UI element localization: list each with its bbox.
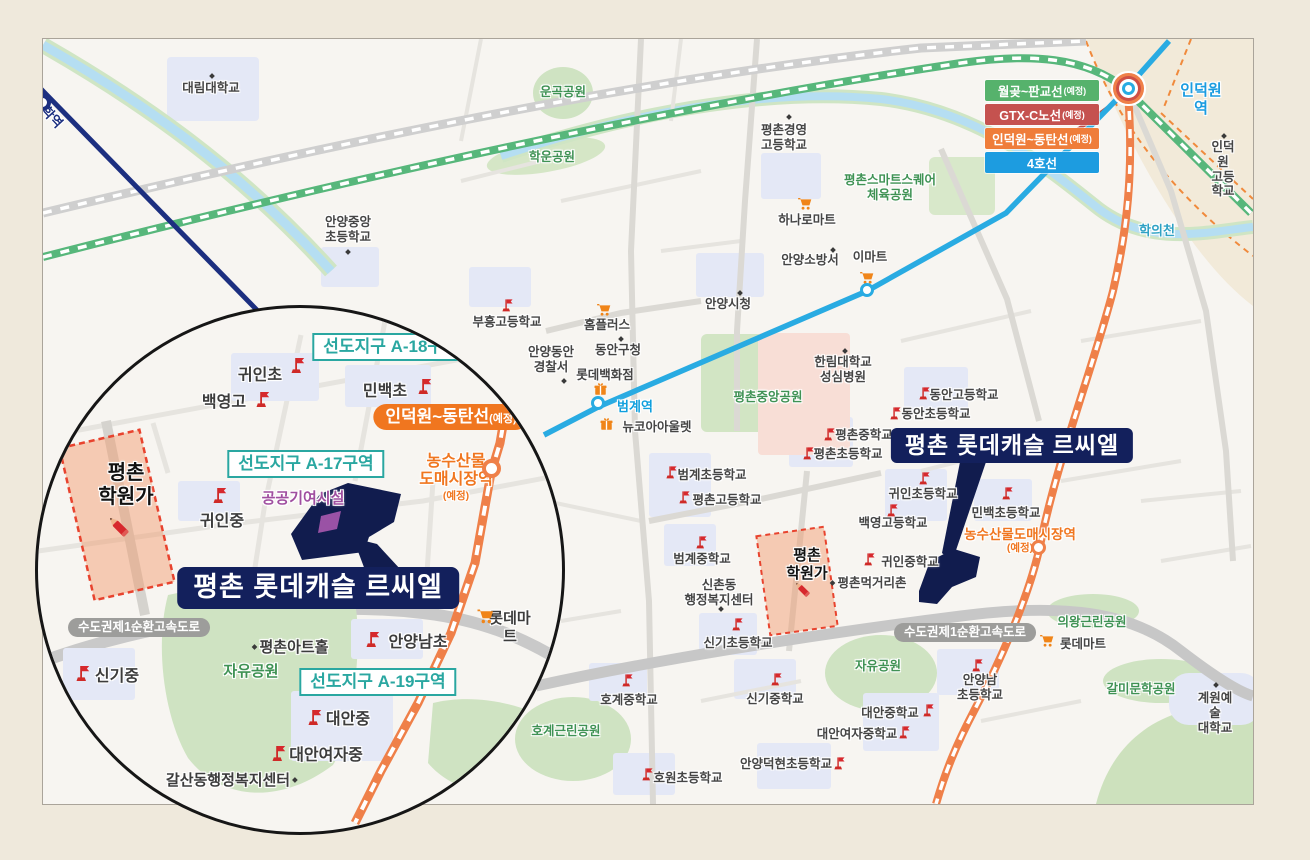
mart-cart-icon [595, 301, 612, 323]
nongsusanmul-station-main: 농수산물도매시장역 [964, 527, 1076, 543]
lotte-dept: 롯데백화점 [576, 368, 634, 383]
poi-dot-icon [830, 247, 836, 253]
poi-dot-icon [292, 777, 298, 783]
district-a17: 선도지구 A-17구역 [227, 450, 384, 478]
guin-middle-main: 귀인중학교 [881, 555, 939, 570]
school-flag-icon [675, 489, 691, 510]
school-flag-icon [915, 385, 931, 406]
hakuicheon: 학의천 [1139, 223, 1175, 238]
anyangnam-elem-inset: 안양남초 [389, 634, 448, 653]
minbaek-elem-main: 민백초등학교 [971, 506, 1040, 521]
school-flag-icon [361, 629, 381, 654]
daelim-univ: 대림대학교 [182, 81, 240, 96]
guin-elem-inset: 귀인초 [238, 367, 282, 386]
hallym-hospital: 한림대학교 성심병원 [814, 355, 872, 385]
school-flag-icon [662, 464, 678, 485]
ring-expressway-main: 수도권제1순환고속도로 [894, 623, 1036, 642]
school-flag-icon [208, 485, 228, 510]
pc-central-park: 평촌중앙공원 [733, 390, 802, 405]
mart-cart-icon [1038, 632, 1055, 654]
howon-elem: 호원초등학교 [653, 771, 722, 786]
poi-dot-icon [842, 348, 848, 354]
poi-dot-icon [618, 336, 624, 342]
pyeongchon-middle: 평촌중학교 [835, 428, 893, 443]
pyeongchon-lotte-castle-location-map: { "project": {"name": "평촌 롯데캐슬 르씨엘"}, "l… [0, 0, 1310, 860]
line-indeogwon-dongtan-legend: 인덕원~동탄선(예정) [985, 128, 1099, 149]
school-flag-icon [799, 445, 815, 466]
rail-line-legend: 월곶~판교선(예정)GTX-C노선(예정)인덕원~동탄선(예정)4호선 [985, 80, 1101, 176]
anyang-cityhall: 안양시청 [705, 297, 751, 312]
poi-dot-icon [786, 114, 792, 120]
nongsusanmul-note-main: (예정) [1007, 542, 1033, 554]
school-flag-icon [883, 502, 899, 523]
indeogwon-station-marker [1122, 82, 1135, 95]
poi-dot-icon [209, 73, 215, 79]
school-flag-icon [998, 485, 1014, 506]
daean-girls-inset: 대안여자중 [289, 747, 363, 766]
uiwang-park: 의왕근린공원 [1057, 615, 1126, 630]
school-flag-icon [915, 470, 931, 491]
school-flag-icon [413, 376, 433, 401]
school-flag-icon [767, 671, 783, 692]
poi-dot-icon [561, 378, 567, 384]
indeogwon-high: 인덕원 고등학교 [1208, 140, 1238, 199]
hakwon-pencil-icon [103, 511, 133, 546]
daean-middle-inset: 대안중 [326, 711, 370, 730]
indeogwon-dongtan-pill: 인덕원~동탄선(예정) [373, 404, 528, 430]
pc-gyeongyeong-high: 평촌경영 고등학교 [761, 123, 807, 153]
school-flag-icon [71, 663, 91, 688]
kaywon-univ: 계원예술 대학교 [1196, 691, 1234, 735]
beomgye-elem: 범계초등학교 [677, 468, 746, 483]
line-4-legend: 4호선 [985, 152, 1099, 173]
galmi-park: 갈미문학공원 [1106, 682, 1175, 697]
galsan-center: 갈산동행정복지센터 [166, 772, 300, 790]
mart-cart-icon [796, 195, 813, 217]
pyeongchon-high: 평촌고등학교 [692, 493, 761, 508]
jayu-park-inset: 자유공원 [223, 663, 278, 681]
district-a19: 선도지구 A-19구역 [299, 668, 456, 696]
indeogwon-station-label: 인덕원역 [1175, 82, 1227, 117]
line-gtx-c-legend: GTX-C노선(예정) [985, 104, 1099, 125]
pc-arthall: 평촌아트홀 [249, 639, 328, 657]
pc-meokgeori: 평촌먹거리촌 [827, 576, 906, 591]
school-flag-icon [895, 724, 911, 745]
anyang-fire-station: 안양소방서 [781, 253, 839, 268]
pyeongchon-station-marker [860, 283, 874, 297]
sinchon-center: 신촌동 행정복지센터 [684, 578, 753, 608]
poi-dot-icon [1213, 682, 1219, 688]
school-flag-icon [638, 766, 654, 787]
daean-middle-main: 대안중학교 [861, 706, 919, 721]
poi-dot-icon [737, 290, 743, 296]
pc-smartsquare-park: 평촌스마트스퀘어 체육공원 [844, 173, 936, 203]
school-flag-icon [830, 755, 846, 776]
line-wolgot-pangyo-legend: 월곶~판교선(예정) [985, 80, 1099, 101]
singi-elem: 신기초등학교 [703, 636, 772, 651]
poi-dot-icon [252, 644, 258, 650]
school-flag-icon [968, 657, 984, 678]
jayu-park-main: 자유공원 [855, 659, 901, 674]
school-flag-icon [303, 707, 323, 732]
school-flag-icon [820, 426, 836, 447]
baekyeong-high-inset: 백영고 [202, 394, 246, 413]
department-gift-icon [599, 417, 614, 437]
district-a18: 선도지구 A-18구역 [312, 333, 469, 361]
project-label-main: 평촌 롯데캐슬 르씨엘 [891, 428, 1133, 463]
minbaek-elem-inset: 민백초 [363, 383, 407, 402]
magnifier-inset: 선도지구 A-18구역귀인초백영고민백초인덕원~동탄선(예정)선도지구 A-17… [35, 305, 565, 835]
school-flag-icon [919, 702, 935, 723]
nongsusanmul-note-inset: (예정) [443, 490, 469, 502]
mart-cart-icon [475, 606, 495, 631]
school-flag-icon [692, 534, 708, 555]
school-flag-icon [286, 355, 306, 380]
anyang-jungang-elem: 안양중앙 초등학교 [325, 215, 371, 245]
ungok-park: 운곡공원 [540, 85, 586, 100]
school-flag-icon [618, 672, 634, 693]
hakwon-pencil-icon [791, 578, 813, 605]
ring-expressway-inset: 수도권제1순환고속도로 [68, 618, 210, 637]
poi-dot-icon [830, 580, 836, 586]
school-flag-icon [251, 389, 271, 414]
hogye-middle: 호계중학교 [600, 693, 658, 708]
beomgye-station-label: 범계역 [617, 399, 653, 414]
anyang-deokhyeon-elem: 안양덕현초등학교 [740, 757, 832, 772]
nongsusanmul-station-marker-main [1031, 540, 1046, 555]
guin-middle-inset: 귀인중 [200, 513, 244, 532]
public-facility: 공공기여시설 [262, 490, 345, 508]
school-flag-icon [860, 551, 876, 572]
hakwonga-inset: 평촌 학원가 [98, 461, 153, 509]
poi-dot-icon [345, 249, 351, 255]
lottemart-main: 롯데마트 [1060, 637, 1106, 652]
poi-dot-icon [1221, 133, 1227, 139]
daean-girls-main: 대안여자중학교 [817, 727, 898, 742]
school-flag-icon [728, 616, 744, 637]
pyeongchon-elem: 평촌초등학교 [813, 447, 882, 462]
dongan-guoffice: 동안구청 [595, 343, 641, 358]
singi-middle-main: 신기중학교 [746, 692, 804, 707]
dongan-high: 동안고등학교 [929, 388, 998, 403]
beomgye-station-marker [591, 396, 605, 410]
hakun-park: 학운공원 [529, 150, 575, 165]
inset-map-labels: 선도지구 A-18구역귀인초백영고민백초인덕원~동탄선(예정)선도지구 A-17… [38, 308, 562, 832]
singi-middle-inset: 신기중 [95, 668, 139, 687]
school-flag-icon [886, 405, 902, 426]
project-label-inset: 평촌 롯데캐슬 르씨엘 [177, 567, 459, 609]
school-flag-icon [267, 743, 287, 768]
dongan-elem: 동안초등학교 [901, 407, 970, 422]
newcore-outlet: 뉴코아아울렛 [622, 420, 691, 435]
emart: 이마트 [853, 250, 888, 265]
nongsusanmul-station-marker-inset [482, 459, 501, 478]
